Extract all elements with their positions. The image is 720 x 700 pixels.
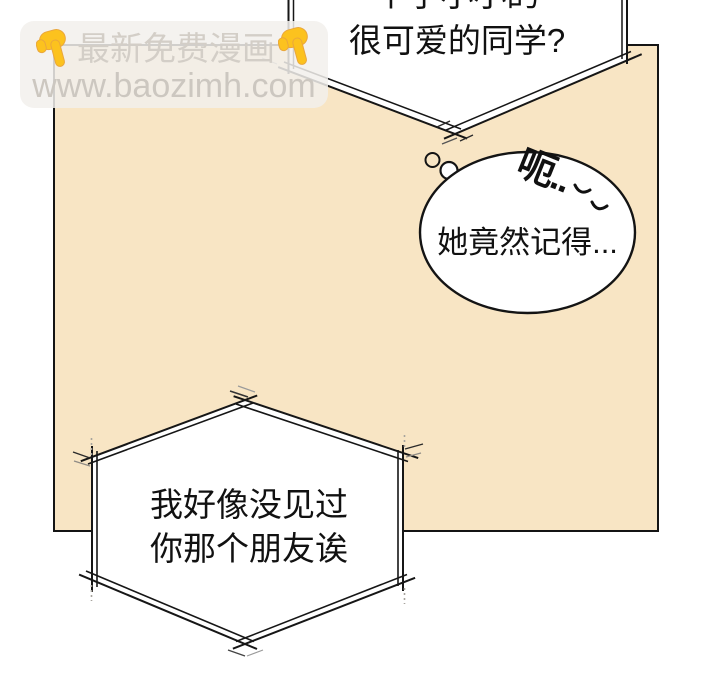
bottom-speech-text: 我好像没见过 你那个朋友诶 — [110, 483, 388, 571]
pointing-down-hand-icon — [278, 25, 318, 69]
top-speech-text: 个子小小的 很可爱的同学? — [312, 0, 602, 64]
bottom-speech-line1: 我好像没见过 — [110, 483, 388, 527]
thought-text: 她竟然记得... — [425, 217, 630, 262]
bottom-speech-line2: 你那个朋友诶 — [110, 527, 388, 571]
watermark-title: 最新免费漫画 — [74, 29, 278, 69]
comic-page: 个子小小的 很可爱的同学? 呃.. 她竟然记得... 我好像没见过 你那个朋友诶… — [0, 0, 720, 700]
comic-panel — [53, 44, 659, 532]
top-speech-line1: 个子小小的 — [312, 0, 602, 18]
pointing-down-hand-icon — [36, 27, 76, 71]
watermark-url: www.baozimh.com — [24, 66, 324, 106]
watermark: 最新免费漫画 www.baozimh.com — [20, 21, 328, 108]
top-speech-line2: 很可爱的同学? — [312, 18, 602, 64]
